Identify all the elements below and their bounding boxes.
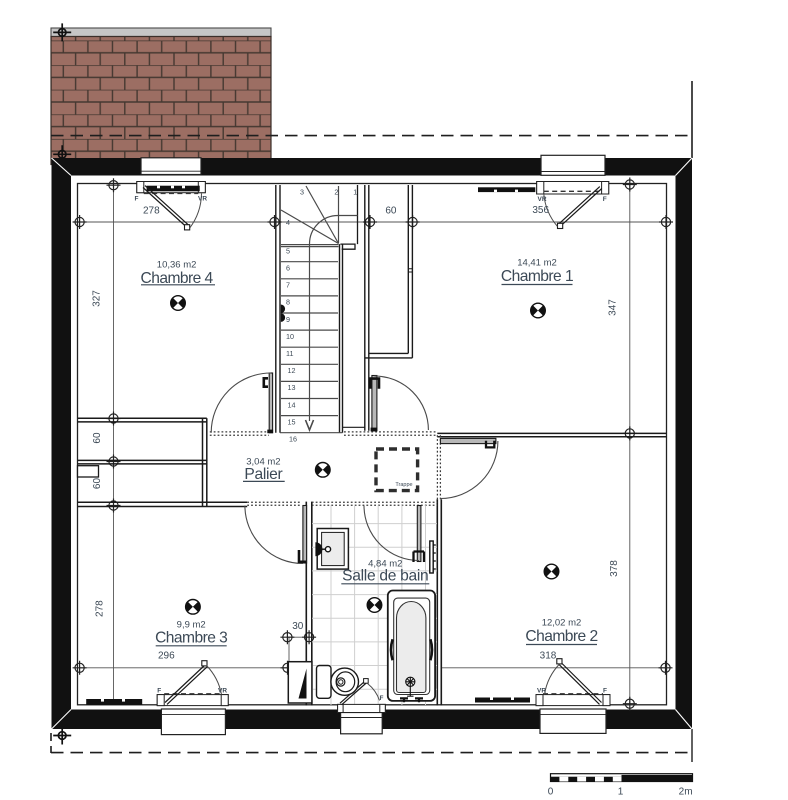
svg-text:VR: VR bbox=[218, 688, 227, 695]
svg-text:14: 14 bbox=[288, 400, 296, 409]
svg-text:8: 8 bbox=[286, 298, 290, 307]
svg-text:Salle de bain: Salle de bain bbox=[342, 568, 428, 585]
svg-text:12,02 m2: 12,02 m2 bbox=[542, 618, 582, 629]
svg-text:60: 60 bbox=[92, 432, 103, 444]
svg-text:356: 356 bbox=[532, 205, 549, 216]
svg-text:10,36 m2: 10,36 m2 bbox=[157, 260, 197, 271]
svg-text:5: 5 bbox=[286, 246, 290, 255]
svg-text:1: 1 bbox=[618, 787, 624, 798]
svg-text:12: 12 bbox=[288, 366, 296, 375]
svg-text:1: 1 bbox=[353, 188, 357, 197]
svg-text:VR: VR bbox=[198, 195, 207, 202]
svg-text:VR: VR bbox=[537, 196, 546, 203]
svg-text:9: 9 bbox=[286, 315, 290, 324]
svg-text:F: F bbox=[603, 688, 607, 695]
svg-text:278: 278 bbox=[143, 206, 160, 217]
svg-text:F: F bbox=[135, 195, 139, 202]
svg-text:15: 15 bbox=[288, 417, 296, 426]
svg-text:60: 60 bbox=[385, 206, 397, 217]
svg-text:10: 10 bbox=[286, 332, 294, 341]
svg-text:327: 327 bbox=[92, 290, 103, 307]
svg-text:Chambre 1: Chambre 1 bbox=[501, 268, 573, 285]
svg-text:2m: 2m bbox=[679, 787, 693, 798]
svg-text:Palier: Palier bbox=[244, 466, 282, 483]
svg-text:6: 6 bbox=[286, 264, 290, 273]
svg-text:2: 2 bbox=[334, 188, 338, 197]
svg-text:Chambre 2: Chambre 2 bbox=[525, 628, 597, 645]
svg-text:296: 296 bbox=[158, 650, 175, 661]
svg-text:378: 378 bbox=[609, 560, 620, 577]
svg-text:F: F bbox=[603, 196, 607, 203]
svg-text:347: 347 bbox=[608, 299, 619, 316]
svg-text:14,41 m2: 14,41 m2 bbox=[517, 258, 557, 269]
svg-text:3: 3 bbox=[300, 188, 304, 197]
svg-text:13: 13 bbox=[288, 383, 296, 392]
svg-text:7: 7 bbox=[286, 281, 290, 290]
svg-text:16: 16 bbox=[289, 435, 297, 444]
svg-text:Trappe: Trappe bbox=[395, 482, 412, 488]
svg-text:F: F bbox=[157, 688, 161, 695]
svg-text:30: 30 bbox=[292, 621, 304, 632]
svg-text:VR: VR bbox=[537, 688, 546, 695]
svg-text:60: 60 bbox=[92, 478, 103, 490]
svg-text:0: 0 bbox=[548, 787, 554, 798]
svg-text:278: 278 bbox=[95, 600, 106, 617]
svg-text:11: 11 bbox=[286, 349, 293, 358]
svg-text:318: 318 bbox=[540, 650, 557, 661]
svg-text:4: 4 bbox=[286, 218, 290, 227]
svg-text:Chambre 3: Chambre 3 bbox=[155, 629, 227, 646]
svg-text:F: F bbox=[380, 695, 384, 702]
